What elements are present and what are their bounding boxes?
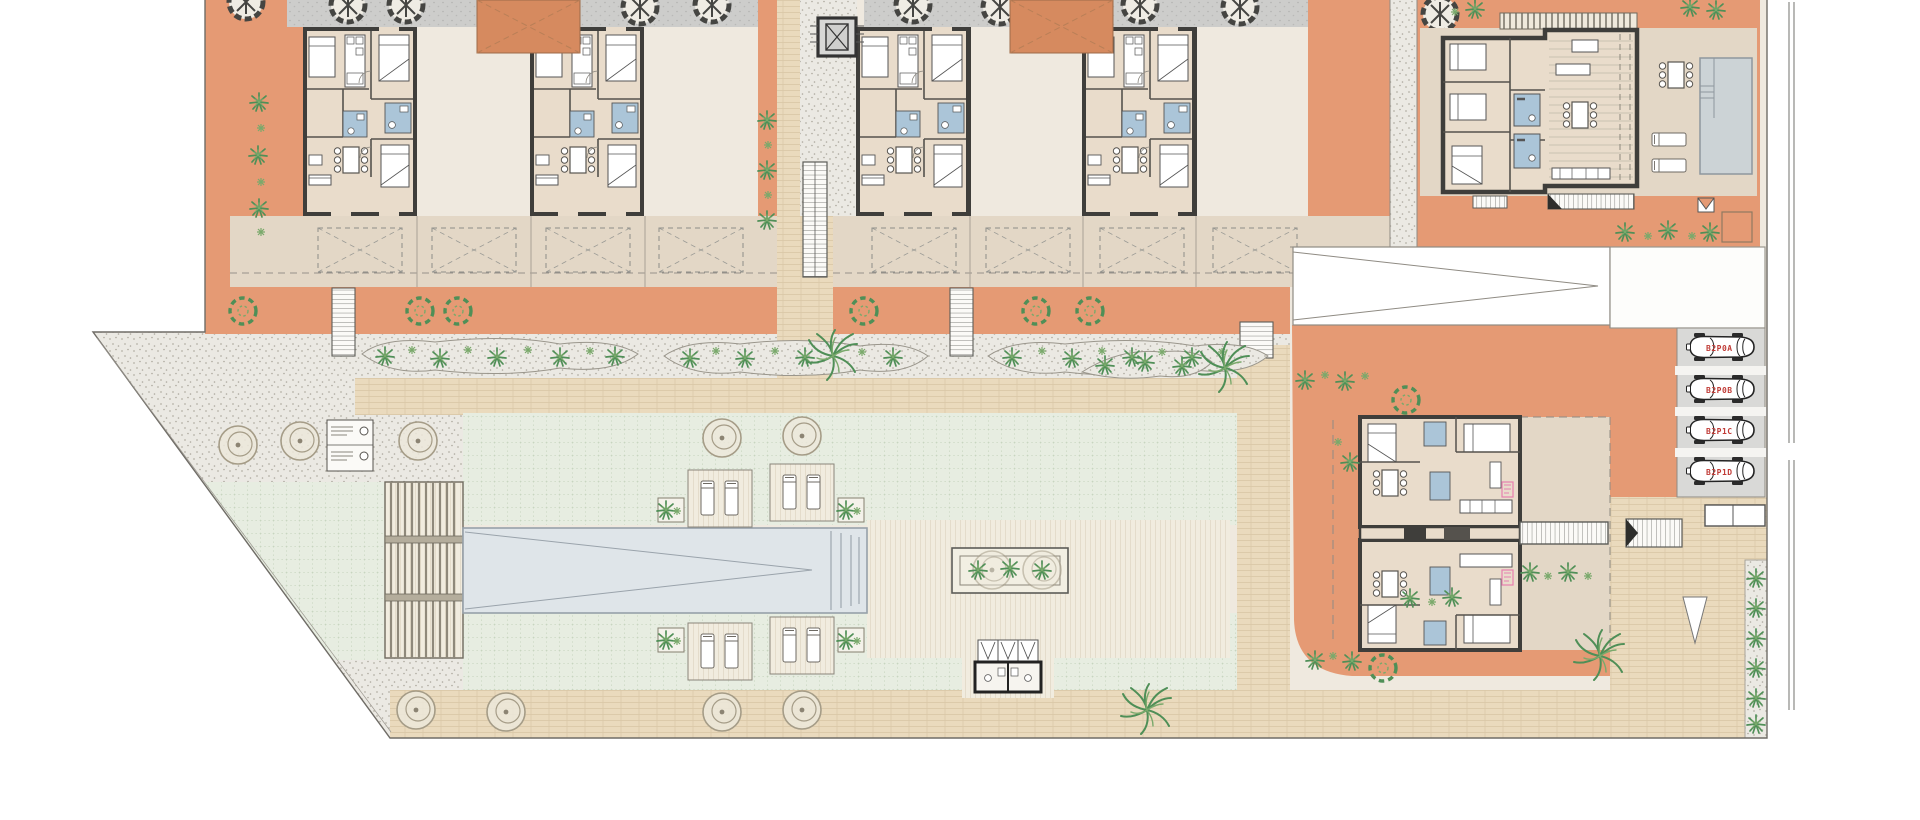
villa-pool <box>1700 58 1752 174</box>
stall-divider <box>1675 448 1767 457</box>
entry-portal <box>1705 505 1765 526</box>
villa-step <box>1473 196 1507 208</box>
bed <box>1450 94 1486 120</box>
duplex-spine-corridor <box>1360 527 1520 540</box>
kitchen-counter <box>1552 168 1610 179</box>
garden-band-block-a <box>205 287 777 334</box>
parking-label-2: B2P0B <box>1706 386 1733 395</box>
architectural-site-plan: B2P0A B2P0B B2P1C B2P1D <box>0 0 1920 820</box>
bed <box>1450 44 1486 70</box>
parking-label-1: B2P0A <box>1706 344 1733 353</box>
sofa <box>1490 462 1501 488</box>
stall-divider <box>1675 366 1767 375</box>
legend-symbol-drain <box>360 452 368 460</box>
bed <box>1368 424 1396 462</box>
parking-label-3: B2P1C <box>1706 427 1733 436</box>
bed <box>1452 146 1482 184</box>
ramp-landing <box>1610 247 1765 328</box>
paved-walk-south <box>390 690 1767 738</box>
gravel-path-villa <box>1390 0 1417 247</box>
swimming-pool <box>463 528 867 613</box>
villa-stair <box>1548 194 1634 209</box>
road-edge-lines <box>1789 2 1794 710</box>
kitchen-counter <box>1460 500 1512 513</box>
bathroom <box>1430 472 1450 500</box>
garden-stair <box>332 288 355 356</box>
paved-walk-east-vertical <box>1237 345 1290 690</box>
lawn-west <box>203 482 385 660</box>
bathroom <box>1424 422 1446 446</box>
garden-stair <box>950 288 973 356</box>
villa-house <box>1443 30 1637 192</box>
pergola <box>385 482 463 658</box>
duplex-unit-lower <box>1360 540 1520 650</box>
deck-planter <box>952 548 1068 593</box>
patio-band-block-a <box>230 216 777 287</box>
duplex-unit-upper <box>1360 417 1520 527</box>
legend-symbol-drain <box>360 427 368 435</box>
sofa <box>1556 64 1590 75</box>
parking-label-4: B2P1D <box>1706 468 1733 477</box>
bed <box>1464 424 1510 452</box>
planted-strip-east <box>1745 560 1767 738</box>
garden-band-block-b <box>833 287 1290 334</box>
villa-pergola-fence <box>1500 13 1637 29</box>
site-plan-drawing: B2P0A B2P0B B2P1C B2P1D <box>0 0 1920 820</box>
entry-bridge <box>1520 522 1608 544</box>
stall-divider <box>1675 407 1767 416</box>
legend-box <box>327 420 373 471</box>
garage-ramp <box>1293 247 1610 325</box>
